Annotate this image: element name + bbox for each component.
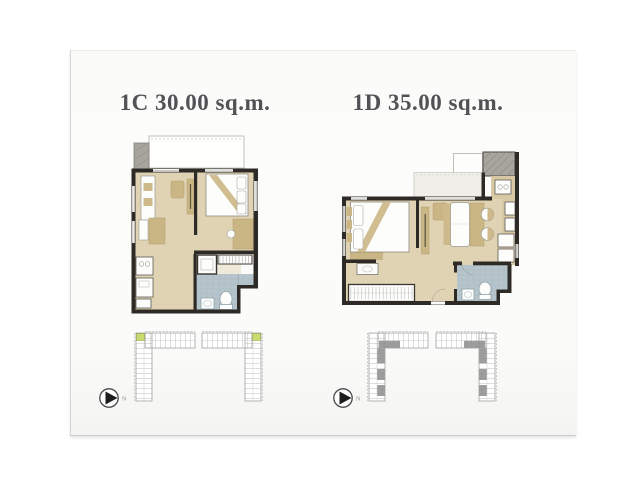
paper-page: 1C 30.00 sq.m. — [70, 50, 576, 436]
screenshot-root: 1C 30.00 sq.m. — [0, 0, 640, 480]
north-arrow-1d: N — [331, 385, 365, 411]
sofa-1d — [444, 203, 470, 247]
floor-plan-1d — [337, 144, 559, 324]
terrace-1d — [414, 173, 483, 199]
unit-section-1d: 1D 35.00 sq.m. — [71, 51, 576, 435]
sink-icon-1d — [462, 289, 474, 300]
ac-ledge-1d — [483, 152, 515, 176]
bed-1d — [347, 202, 410, 252]
unit-title-1d: 1D 35.00 sq.m. — [333, 90, 523, 116]
north-label: N — [356, 397, 361, 403]
key-plan-1d-right — [432, 330, 498, 404]
key-plan-1d-left — [366, 330, 432, 404]
toilet-icon-1d — [479, 282, 491, 300]
tv-console-1d — [422, 207, 430, 254]
bed-bench-1d — [351, 253, 383, 260]
vanity-1d — [357, 264, 378, 275]
wardrobe-1d — [349, 285, 415, 302]
